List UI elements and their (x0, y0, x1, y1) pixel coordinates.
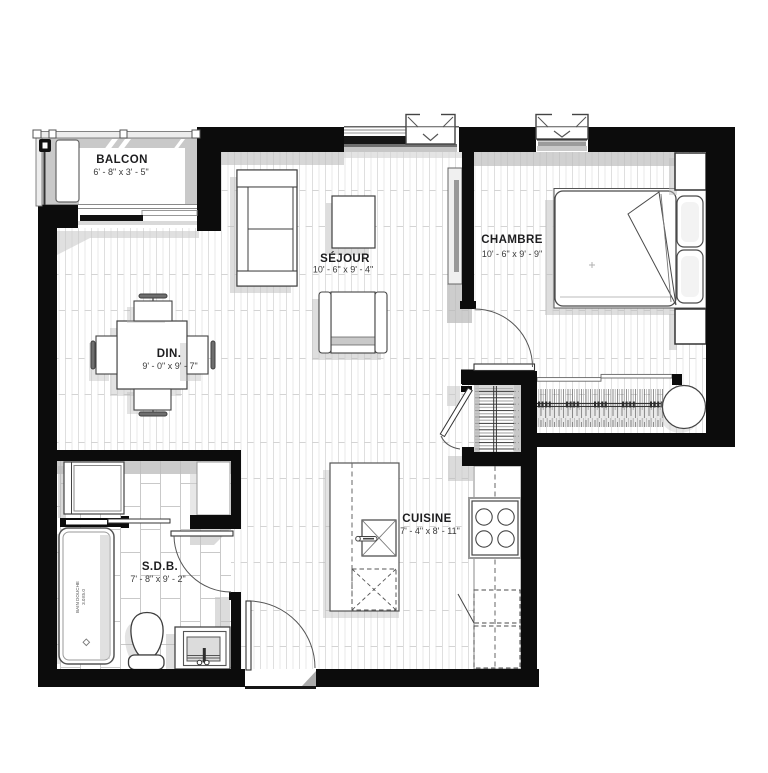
svg-text:7' - 8" x 9' - 2": 7' - 8" x 9' - 2" (130, 574, 185, 584)
svg-text:9' - 0" x 9' - 7": 9' - 0" x 9' - 7" (142, 361, 197, 371)
svg-text:3.0X5.0: 3.0X5.0 (81, 589, 86, 605)
svg-text:BAIN DOUCHE: BAIN DOUCHE (75, 581, 80, 613)
svg-text:10' - 6" x 9' - 4": 10' - 6" x 9' - 4" (313, 265, 373, 275)
svg-text:SÉJOUR: SÉJOUR (320, 252, 370, 265)
svg-text:S.D.B.: S.D.B. (142, 561, 178, 573)
svg-text:BALCON: BALCON (96, 154, 148, 166)
svg-text:10' - 6" x 9' - 9": 10' - 6" x 9' - 9" (482, 249, 542, 259)
svg-text:6' - 8" x 3' - 5": 6' - 8" x 3' - 5" (93, 167, 148, 177)
svg-text:CHAMBRE: CHAMBRE (481, 234, 543, 246)
svg-text:CUISINE: CUISINE (402, 513, 451, 525)
svg-text:7' - 4" x 8' - 11": 7' - 4" x 8' - 11" (400, 526, 460, 536)
svg-text:DIN.: DIN. (157, 348, 182, 360)
